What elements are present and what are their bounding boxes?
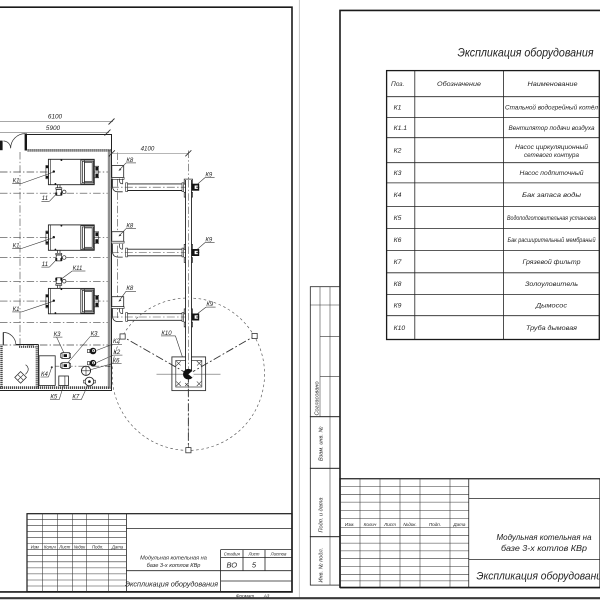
svg-text:6100: 6100 <box>48 114 63 121</box>
svg-text:Лист: Лист <box>383 522 396 527</box>
svg-text:Насос подпиточный: Насос подпиточный <box>520 169 584 177</box>
svg-text:Золоуловитель: Золоуловитель <box>525 281 578 288</box>
svg-text:Лист: Лист <box>247 552 259 557</box>
svg-text:Изм.: Изм. <box>345 522 355 527</box>
svg-text:Стадия: Стадия <box>224 552 241 557</box>
svg-text:Поз.: Поз. <box>391 81 404 88</box>
svg-text:Колич: Колич <box>364 522 377 527</box>
svg-text:Взам. инв. №: Взам. инв. № <box>319 426 325 461</box>
svg-text:Подп. и дата: Подп. и дата <box>319 497 325 532</box>
svg-text:Дата: Дата <box>111 545 124 550</box>
svg-text:Дымосос: Дымосос <box>535 302 568 309</box>
svg-text:Согласовано: Согласовано <box>314 381 320 415</box>
svg-text:Грязевой фильтр: Грязевой фильтр <box>523 258 581 266</box>
svg-text:Насос циркуляционный: Насос циркуляционный <box>515 143 588 151</box>
svg-text:К4: К4 <box>394 192 402 199</box>
svg-text:4100: 4100 <box>141 146 155 153</box>
svg-text:сетевого контура: сетевого контура <box>524 152 579 159</box>
svg-text:Наименование: Наименование <box>528 81 578 88</box>
svg-text:Инв. № подл.: Инв. № подл. <box>319 548 325 583</box>
svg-text:К1.1: К1.1 <box>394 125 408 132</box>
svg-text:Колич: Колич <box>44 545 57 550</box>
svg-text:5900: 5900 <box>46 125 61 132</box>
svg-text:Подп.: Подп. <box>429 522 441 527</box>
svg-text:Экспликация оборудования: Экспликация оборудования <box>476 571 600 583</box>
svg-text:Вентилятор подачи воздуха: Вентилятор подачи воздуха <box>509 124 595 132</box>
svg-text:К1: К1 <box>394 104 402 111</box>
svg-text:Бак расширительный мембраный: Бак расширительный мембраный <box>508 236 596 244</box>
svg-text:Дата: Дата <box>452 522 466 527</box>
svg-text:Подп.: Подп. <box>92 545 103 550</box>
svg-text:Труба дымовая: Труба дымовая <box>526 324 578 332</box>
svg-text:Лист: Лист <box>58 545 70 550</box>
svg-text:К9: К9 <box>394 302 402 309</box>
svg-text:Экспликация оборудования: Экспликация оборудования <box>125 579 218 588</box>
svg-text:К8: К8 <box>394 281 402 288</box>
svg-text:Изм: Изм <box>31 545 39 550</box>
svg-text:базе 3-х котлов КВр: базе 3-х котлов КВр <box>501 544 587 553</box>
svg-text:К3: К3 <box>394 170 402 177</box>
svg-text:Обозначение: Обозначение <box>437 80 481 88</box>
svg-text:К2: К2 <box>394 147 402 154</box>
svg-text:Стальной водогрейный котёл: Стальной водогрейный котёл <box>505 103 598 111</box>
svg-text:К5: К5 <box>394 215 402 222</box>
svg-text:Модульная котельная на: Модульная котельная на <box>140 556 207 562</box>
svg-text:Экспликация оборудования: Экспликация оборудования <box>458 47 594 60</box>
svg-text:базе 3-х котлов КВр: базе 3-х котлов КВр <box>147 563 201 569</box>
svg-text:№док: №док <box>74 545 86 550</box>
svg-text:К10: К10 <box>394 325 406 332</box>
svg-text:К7: К7 <box>394 259 402 266</box>
svg-text:Водоподготовительная установка: Водоподготовительная установка <box>507 214 596 222</box>
svg-text:К6: К6 <box>394 237 402 244</box>
svg-text:№док.: №док. <box>403 522 417 527</box>
svg-text:Модульная котельная на: Модульная котельная на <box>497 533 592 542</box>
svg-text:Листов: Листов <box>270 552 287 557</box>
svg-text:Бак запаса воды: Бак запаса воды <box>522 191 581 199</box>
svg-text:ВО: ВО <box>226 560 237 569</box>
